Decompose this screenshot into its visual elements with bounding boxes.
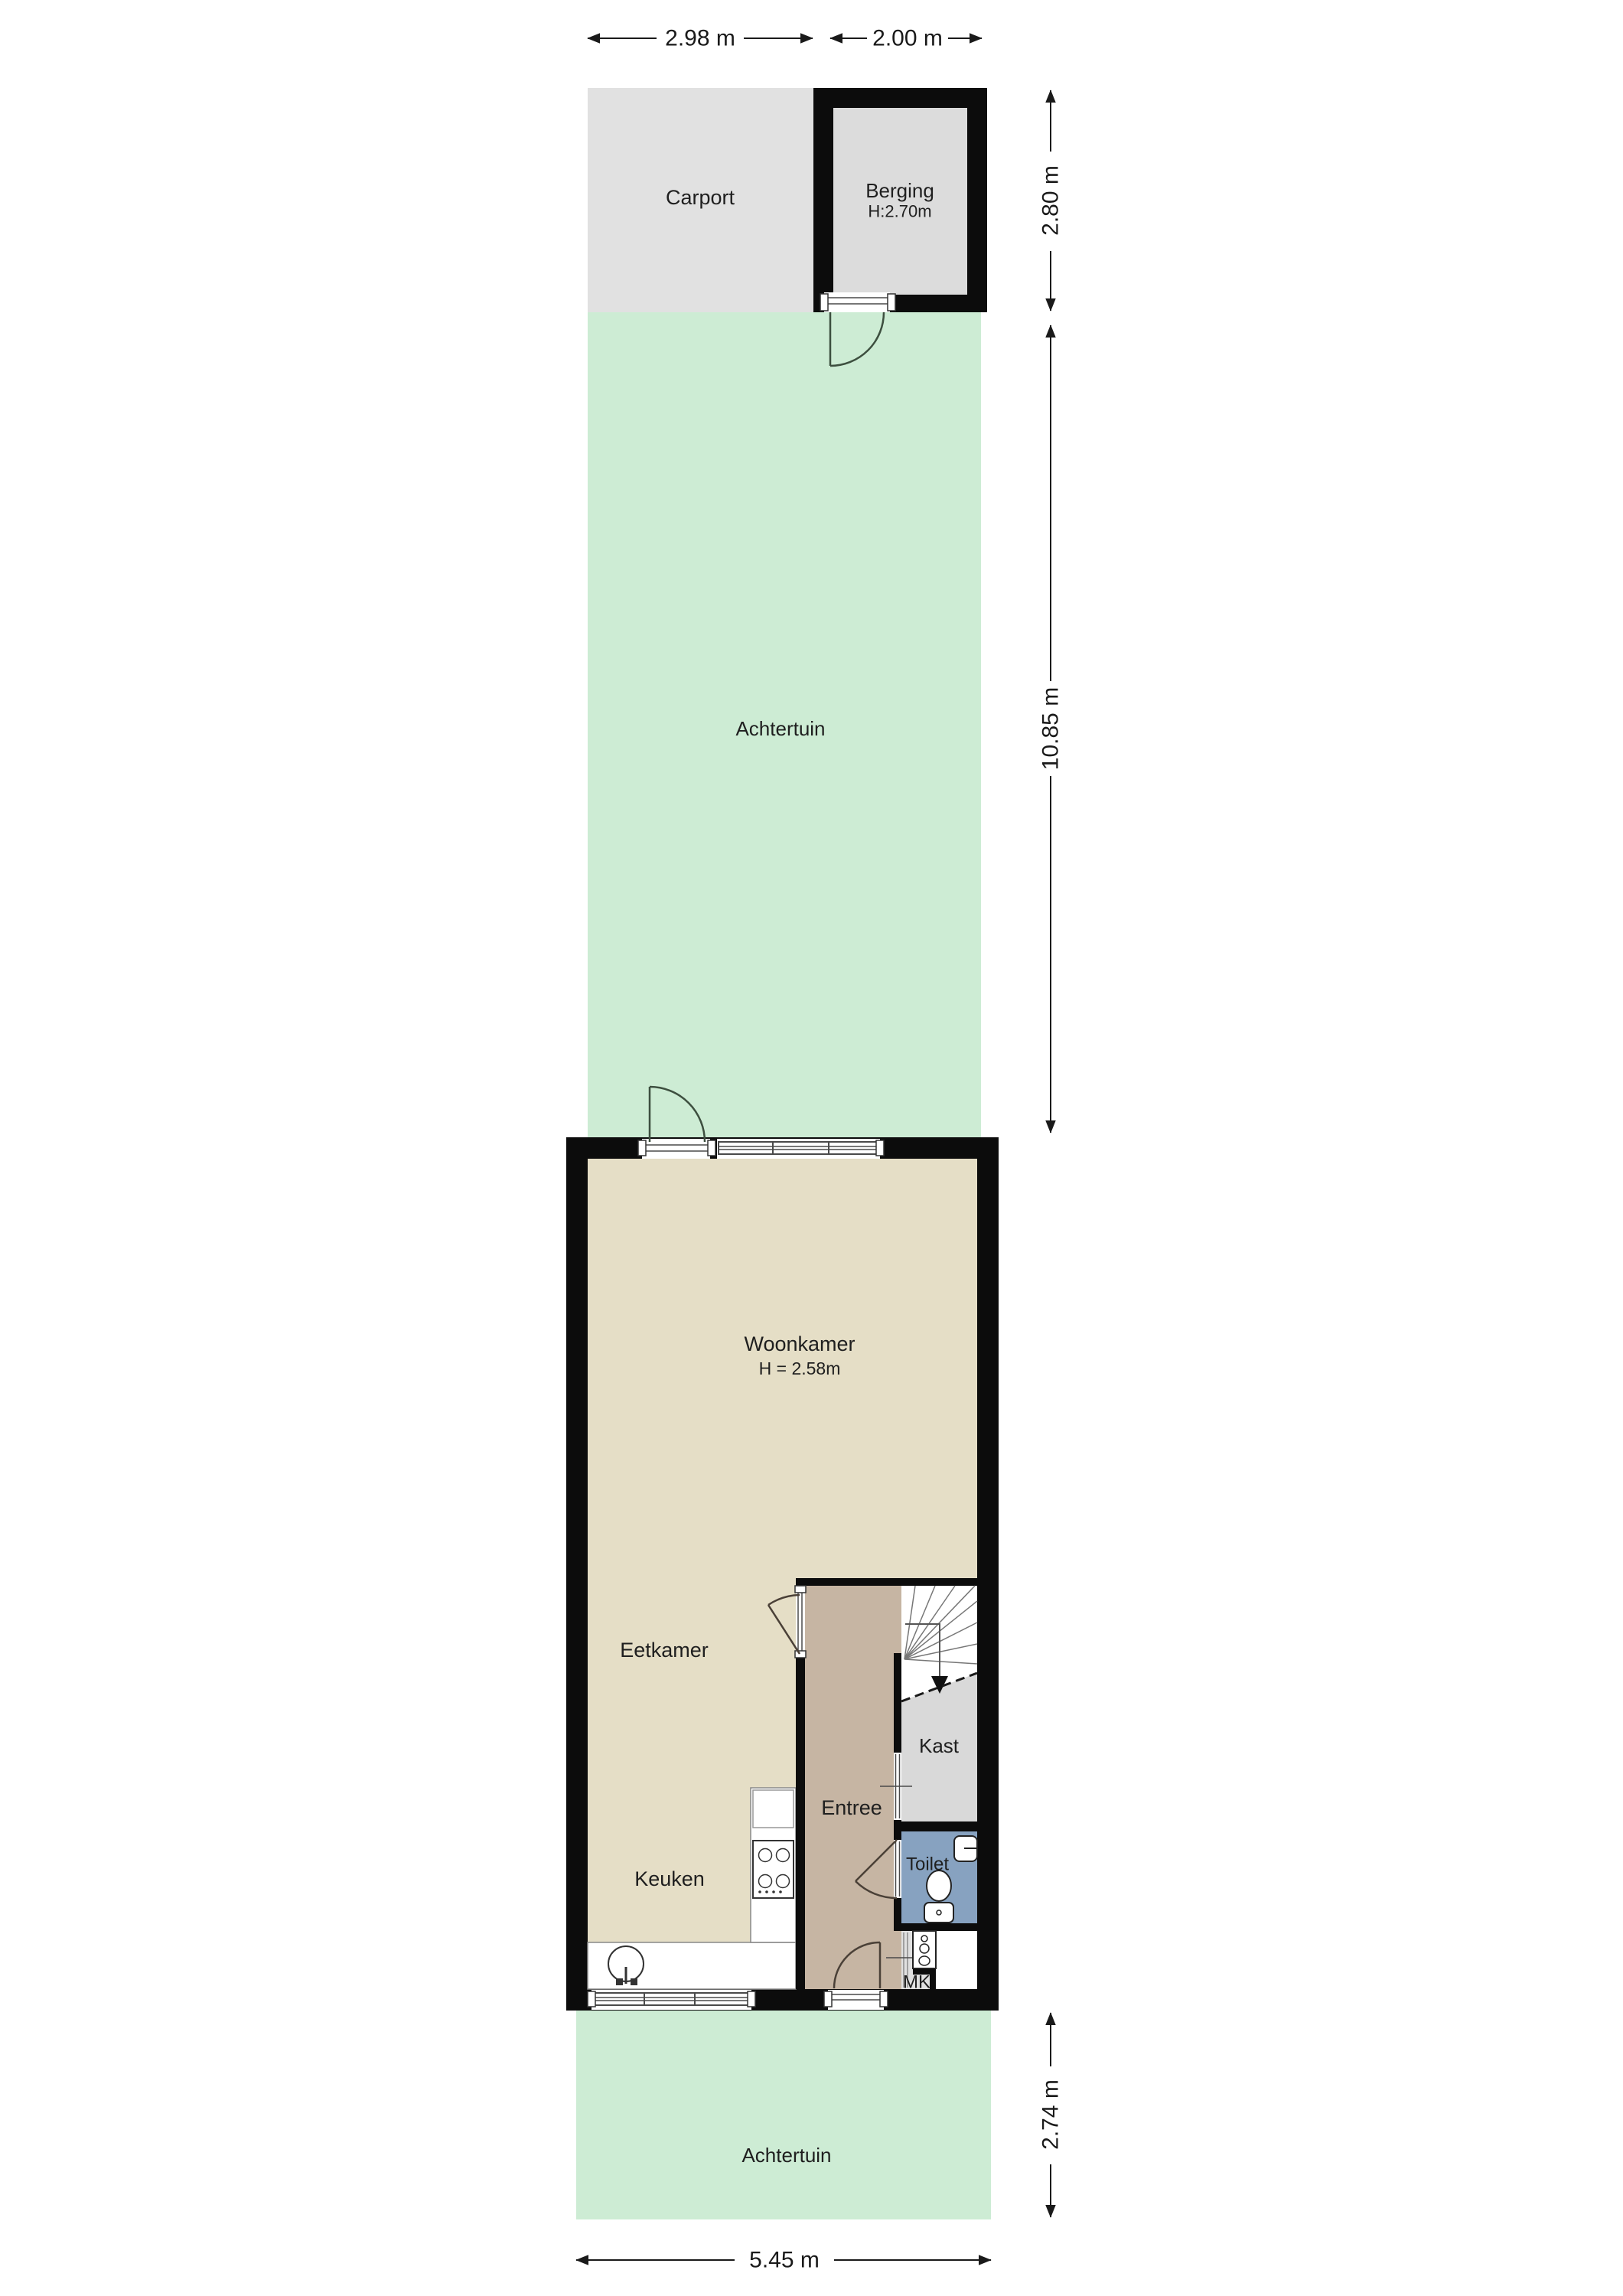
wall-mk-stub-v xyxy=(930,1968,936,1989)
svg-text:10.85 m: 10.85 m xyxy=(1038,687,1064,770)
living-room-window xyxy=(717,1139,884,1159)
floorplan-canvas: Carport Berging H:2.70m Achtertuin Woonk… xyxy=(0,0,1623,2296)
carport-label: Carport xyxy=(666,186,735,209)
back-garden-label: Achtertuin xyxy=(735,717,825,740)
kast-label: Kast xyxy=(919,1734,960,1757)
dimension-plot-width: 5.45 m xyxy=(576,2248,991,2273)
front-garden-area xyxy=(576,2011,991,2219)
svg-text:2.00 m: 2.00 m xyxy=(872,26,943,51)
keuken-label: Keuken xyxy=(634,1867,705,1890)
svg-text:5.45 m: 5.45 m xyxy=(749,2248,820,2273)
entree-label: Entree xyxy=(821,1796,882,1819)
garden-door-opening xyxy=(642,1139,710,1159)
dimension-carport-width: 2.98 m xyxy=(588,26,813,51)
wall-hall-stairs xyxy=(894,1653,901,1753)
berging-door-jamb xyxy=(888,294,895,311)
wall-toilet-mk xyxy=(894,1923,977,1931)
woonkamer-label: Woonkamer xyxy=(744,1332,855,1355)
meter-box-icon xyxy=(913,1931,936,1968)
woonkamer-height-label: H = 2.58m xyxy=(759,1358,841,1378)
berging-door-opening xyxy=(824,292,890,312)
svg-text:2.98 m: 2.98 m xyxy=(665,26,735,51)
floorplan-drawing: Carport Berging H:2.70m Achtertuin Woonk… xyxy=(0,0,1623,2296)
dimension-garden-depth: 10.85 m xyxy=(1038,325,1064,1133)
dimension-berging-width: 2.00 m xyxy=(830,26,982,51)
wall-living-hall xyxy=(797,1578,977,1586)
wall-toilet-stub-top xyxy=(894,1831,901,1840)
wall-toilet-stub-bottom xyxy=(894,1898,901,1923)
wall-kast-toilet xyxy=(894,1821,977,1831)
garden-door-jamb xyxy=(638,1140,646,1156)
garden-door-jamb xyxy=(708,1140,715,1156)
eetkamer-label: Eetkamer xyxy=(620,1639,709,1662)
toilet-sink-icon xyxy=(954,1836,977,1861)
entree-floor xyxy=(805,1586,901,1989)
entrance-porch xyxy=(936,1931,977,1989)
dimension-front-garden-depth: 2.74 m xyxy=(1038,2013,1064,2217)
berging-height-label: H:2.70m xyxy=(868,202,931,221)
kitchen-window xyxy=(588,1990,755,2010)
stove-icon xyxy=(753,1841,794,1898)
mk-label: MK xyxy=(903,1972,930,1993)
svg-text:2.80 m: 2.80 m xyxy=(1038,165,1064,236)
toilet-label: Toilet xyxy=(906,1854,949,1875)
svg-text:2.74 m: 2.74 m xyxy=(1038,2079,1064,2150)
berging-label: Berging xyxy=(865,179,934,202)
front-garden-label: Achtertuin xyxy=(741,2144,831,2167)
berging-door-jamb xyxy=(820,294,828,311)
wall-kitchen-hall xyxy=(796,1653,805,1989)
dimension-carport-depth: 2.80 m xyxy=(1038,90,1064,311)
